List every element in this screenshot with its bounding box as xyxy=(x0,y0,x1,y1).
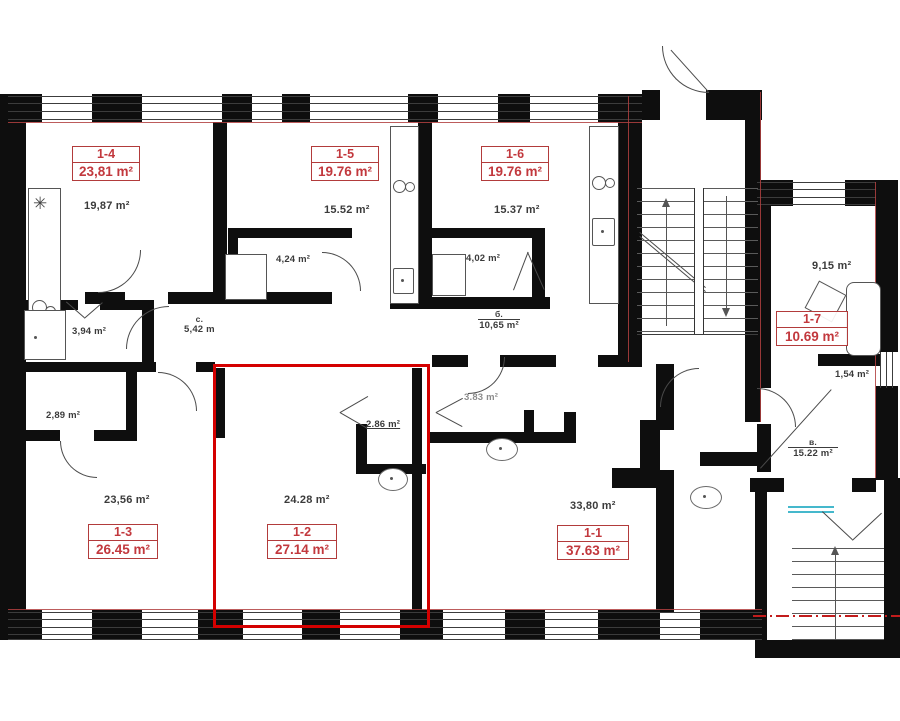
corner-shower-icon xyxy=(24,310,66,360)
wall xyxy=(126,370,137,436)
wall xyxy=(642,90,660,120)
stair-arrow-up xyxy=(666,206,667,326)
wall xyxy=(500,355,556,367)
window-glazing-line xyxy=(757,182,876,183)
window-glazing-line xyxy=(8,639,762,640)
wall xyxy=(598,355,642,367)
unit-area: 10.69 m² xyxy=(777,328,847,345)
balcony-label: в. 15.22 m² xyxy=(788,437,838,459)
wall xyxy=(228,228,352,238)
room-area: 19,87 m² xyxy=(84,200,130,212)
room-area: 15.52 m² xyxy=(324,204,370,216)
wall xyxy=(423,228,540,238)
wall xyxy=(92,94,142,122)
unit-area: 37.63 m² xyxy=(558,542,628,559)
window-sash xyxy=(788,506,834,508)
room-area: 2,89 m² xyxy=(46,410,80,421)
stair-arrow-up xyxy=(835,552,836,640)
wall xyxy=(8,610,42,640)
door-swing-arc xyxy=(158,372,197,411)
burner-icon xyxy=(405,182,415,192)
wall xyxy=(92,610,142,640)
wall xyxy=(876,386,898,480)
drain-dot xyxy=(703,495,706,498)
room-abbr: б. xyxy=(478,309,520,319)
wall xyxy=(656,470,674,612)
room-area: 15.22 m² xyxy=(788,448,838,459)
door-leaf-line xyxy=(84,302,103,319)
wall-accent-line xyxy=(8,122,642,123)
wall xyxy=(598,610,660,640)
room-area: 1,54 m² xyxy=(835,369,869,380)
wall xyxy=(700,452,760,466)
unit-id: 1-3 xyxy=(89,525,157,541)
drain-dot xyxy=(34,336,37,339)
kitchen-unit-16 xyxy=(589,126,619,304)
room-abbr: с. xyxy=(184,314,215,324)
door-swing-arc xyxy=(126,306,169,349)
window-sash xyxy=(788,511,834,513)
window-glazing-line xyxy=(892,352,893,388)
window-glazing-line xyxy=(8,96,642,97)
hall-label: с. 5,42 m xyxy=(184,314,215,335)
wall xyxy=(222,94,252,122)
unit-id: 1-2 xyxy=(268,525,336,541)
wall xyxy=(755,492,767,648)
toilet-icon xyxy=(690,486,722,509)
stair-arrow-down xyxy=(726,196,727,308)
room-area: 4,02 m² xyxy=(466,253,500,264)
drain-dot xyxy=(401,279,404,282)
unit-area: 19.76 m² xyxy=(482,163,548,180)
wall xyxy=(612,468,656,488)
door-swing-arc xyxy=(468,357,505,394)
wall xyxy=(408,94,438,122)
wall xyxy=(884,478,900,648)
unit-id: 1-4 xyxy=(73,147,139,163)
wall-accent-line xyxy=(760,92,761,422)
drain-dot xyxy=(499,447,502,450)
unit-area: 26.45 m² xyxy=(89,541,157,558)
wall xyxy=(640,420,660,470)
unit-id: 1-6 xyxy=(482,147,548,163)
wall xyxy=(282,94,310,122)
window-glazing-line xyxy=(757,204,876,205)
door-swing-arc xyxy=(60,441,97,478)
shower-tray-icon xyxy=(225,254,267,300)
arrow-down-icon xyxy=(722,308,730,317)
wall xyxy=(845,180,876,206)
room-area: 10,65 m² xyxy=(478,320,520,331)
door-swing-arc xyxy=(322,252,361,291)
window-glazing-line xyxy=(637,334,758,335)
wall xyxy=(94,430,137,441)
room-area: 33,80 m² xyxy=(570,500,616,512)
unit-area: 27.14 m² xyxy=(268,541,336,558)
arrow-up-icon xyxy=(831,546,839,555)
room-area: 23,56 m² xyxy=(104,494,150,506)
unit-area: 23,81 m² xyxy=(73,163,139,180)
unit-label-1-1[interactable]: 1-1 37.63 m² xyxy=(557,525,629,560)
burner-icon xyxy=(605,178,615,188)
staircase-entry xyxy=(792,548,884,640)
door-leaf-line xyxy=(436,398,463,413)
shower-tray-icon xyxy=(432,254,466,296)
room-area: 15.37 m² xyxy=(494,204,540,216)
corridor-label: б. 10,65 m² xyxy=(478,309,520,331)
fan-icon: ✳ xyxy=(33,194,47,214)
window-glazing-line xyxy=(8,119,642,120)
wall xyxy=(755,640,900,658)
unit-id: 1-7 xyxy=(777,312,847,328)
room-abbr: в. xyxy=(788,437,838,447)
wall xyxy=(564,412,576,443)
door-swing-arc xyxy=(98,250,141,293)
door-leaf-line xyxy=(852,513,882,541)
section-line xyxy=(753,615,900,617)
room-area: 9,15 m² xyxy=(812,260,851,272)
wall xyxy=(498,94,530,122)
room-area: 4,24 m² xyxy=(276,254,310,265)
arrow-up-icon xyxy=(662,198,670,207)
unit-label-1-4[interactable]: 1-4 23,81 m² xyxy=(72,146,140,181)
wall xyxy=(418,122,432,308)
unit-label-1-6[interactable]: 1-6 19.76 m² xyxy=(481,146,549,181)
bed-icon xyxy=(846,282,881,356)
wall-accent-line xyxy=(628,96,629,362)
room-area: 3.83 m² xyxy=(464,392,498,403)
door-leaf-line xyxy=(822,511,853,540)
wall xyxy=(852,478,876,492)
door-leaf-line xyxy=(513,252,529,291)
selected-unit-outline[interactable] xyxy=(213,364,430,628)
door-swing-arc xyxy=(757,388,796,427)
wall xyxy=(757,180,793,206)
window-glazing-line xyxy=(8,111,642,112)
window-glazing-line xyxy=(8,103,642,104)
burner-icon xyxy=(592,176,606,190)
window-glazing-line xyxy=(886,352,887,388)
floor-plan: ✳ 1-4 23,81 m² 1-5 19.76 m² 1-6 19.76 m²… xyxy=(0,0,900,721)
unit-label-1-7[interactable]: 1-7 10.69 m² xyxy=(776,311,848,346)
toilet-icon xyxy=(486,438,518,461)
unit-id: 1-1 xyxy=(558,526,628,542)
unit-label-1-3[interactable]: 1-3 26.45 m² xyxy=(88,524,158,559)
window-glazing-line xyxy=(757,197,876,198)
door-leaf-line xyxy=(436,412,463,427)
wall xyxy=(432,355,468,367)
wall xyxy=(505,610,545,640)
stair-stringer xyxy=(694,188,704,334)
unit-label-1-5[interactable]: 1-5 19.76 m² xyxy=(311,146,379,181)
unit-id: 1-5 xyxy=(312,147,378,163)
window-glazing-line xyxy=(8,634,762,635)
drain-dot xyxy=(601,230,604,233)
window-glazing-line xyxy=(757,189,876,190)
room-area: 3,94 m² xyxy=(72,326,106,337)
unit-label-1-2[interactable]: 1-2 27.14 m² xyxy=(267,524,337,559)
unit-area: 19.76 m² xyxy=(312,163,378,180)
room-size: 5,42 m xyxy=(184,324,215,335)
wall xyxy=(524,410,534,443)
wall xyxy=(8,430,60,441)
window-glazing-line xyxy=(880,352,881,388)
wall xyxy=(750,478,784,492)
